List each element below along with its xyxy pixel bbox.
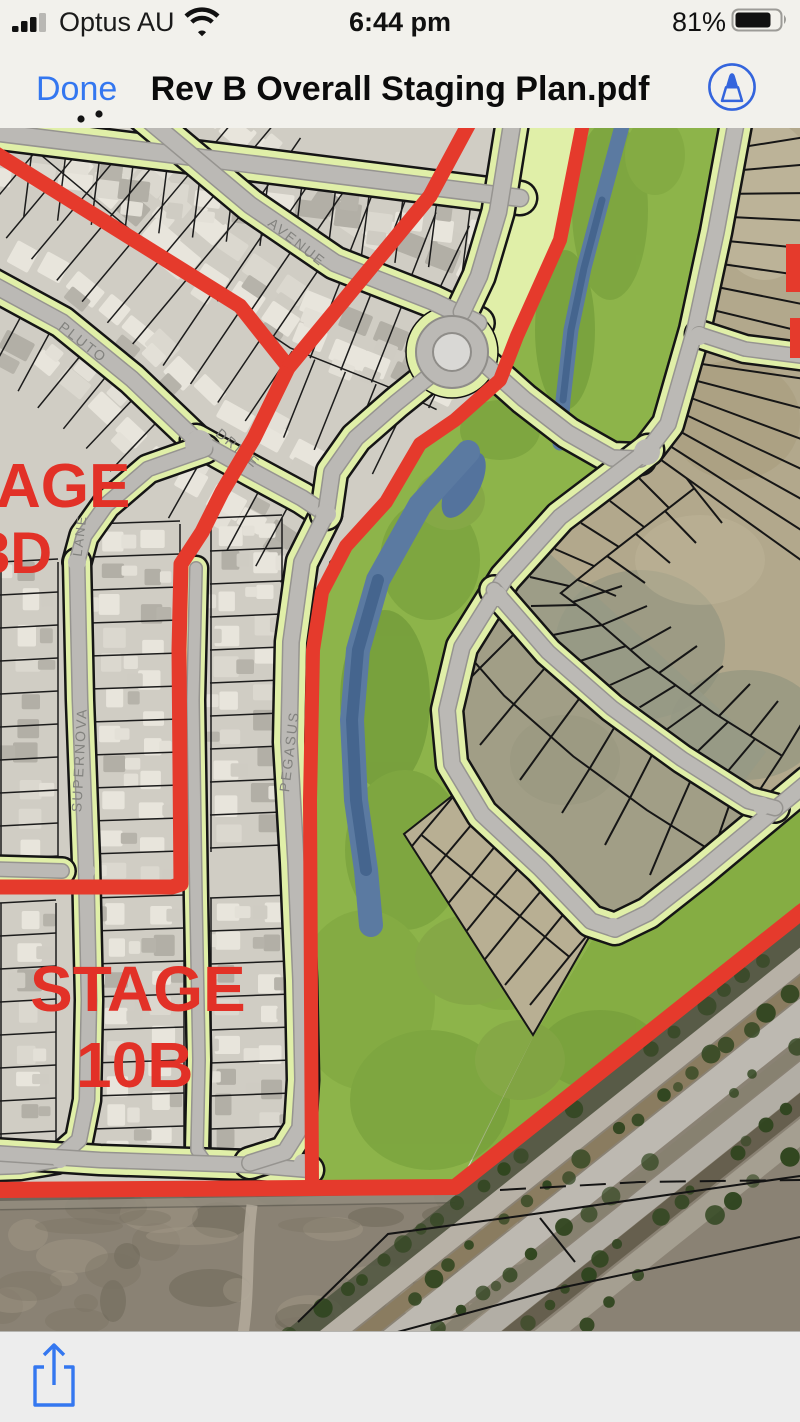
- svg-text:STAGE: STAGE: [30, 953, 246, 1025]
- svg-text:10B: 10B: [76, 1029, 193, 1101]
- svg-text:AGE: AGE: [0, 452, 130, 521]
- svg-text:3D: 3D: [0, 521, 52, 586]
